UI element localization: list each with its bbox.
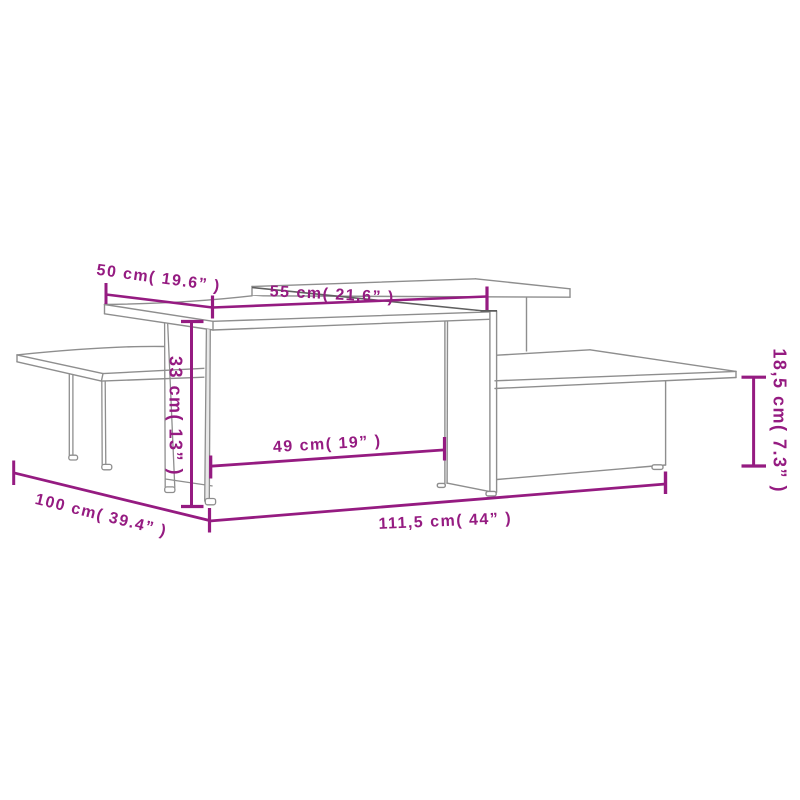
svg-text:18,5 cm( 7.3” ): 18,5 cm( 7.3” ) — [770, 348, 790, 493]
svg-text:33 cm( 13” ): 33 cm( 13” ) — [166, 356, 186, 476]
